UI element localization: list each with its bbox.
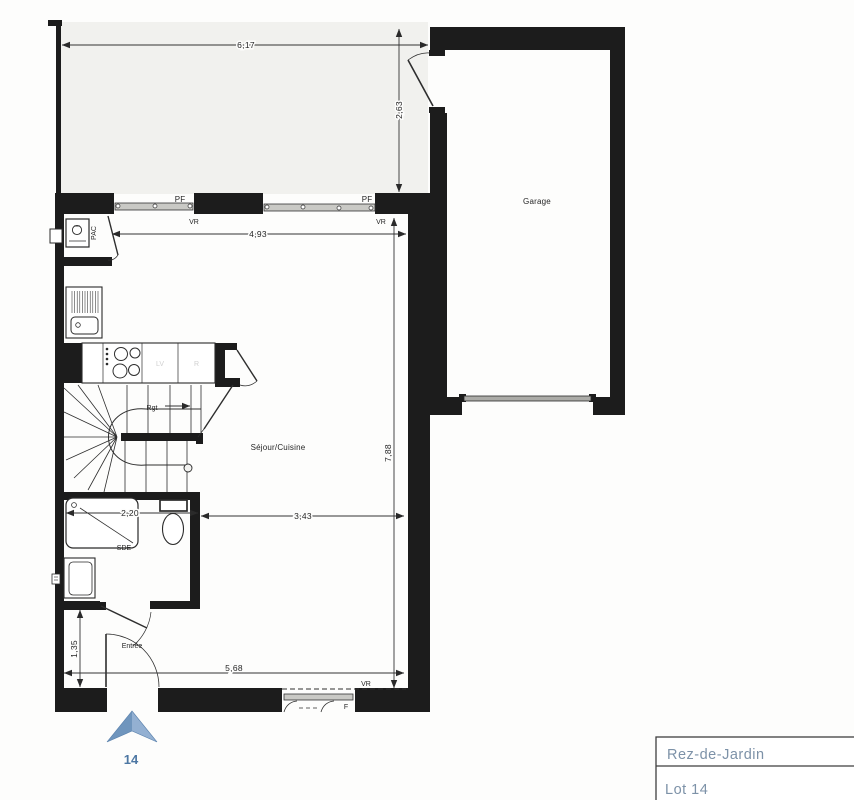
garage-wall-bottom-left <box>430 397 462 415</box>
dim-shower-width: 2,20 <box>121 508 139 518</box>
lot-marker-number: 14 <box>124 752 139 767</box>
window-hinge-dot <box>301 205 305 209</box>
sde-door-leaf <box>101 606 147 628</box>
kitchen: LV R PAC <box>66 219 215 383</box>
window-hinge-dot <box>116 204 120 208</box>
wall-sde-bottom-right <box>150 601 200 609</box>
label-pf-right: PF <box>362 195 373 204</box>
wall-sde-bottom-left <box>58 601 100 610</box>
dim-entry-depth: 1,35 <box>69 640 79 658</box>
floor-plan-drawing: PF PF VR VR VR F <box>0 0 854 800</box>
title-block-level: Rez-de-Jardin <box>667 747 765 763</box>
washbasin-bowl <box>69 562 92 595</box>
wall-bottom-c <box>355 688 430 712</box>
terrace-left-wall <box>56 22 61 194</box>
wall-bottom-a <box>55 688 107 712</box>
wall-top-c <box>375 193 430 214</box>
garage-wall-left <box>430 113 447 397</box>
room-labels: Garage Séjour/Cuisine Entrée <box>122 197 552 650</box>
label-vr-bottom: VR <box>361 681 371 688</box>
entry-door-swing <box>106 634 159 687</box>
sink-basin <box>71 317 98 334</box>
label-fridge: R <box>194 361 199 368</box>
hob-knob <box>106 348 109 351</box>
garage-door-jamb-bottom <box>429 107 445 113</box>
sde-door-swing <box>133 612 151 646</box>
hob-knob <box>106 353 109 356</box>
dim-terrace-depth: 2,63 <box>394 101 404 119</box>
label-vr-right: VR <box>376 219 386 226</box>
lot-marker: 14 <box>107 711 157 767</box>
wall-right <box>408 214 430 712</box>
dim-terrace-width: 6,17 <box>237 40 255 50</box>
stair-mid-wall <box>121 433 202 441</box>
window-hinge-dot <box>369 206 373 210</box>
label-f-bottom: F <box>344 704 348 711</box>
toilet-tank <box>160 500 187 511</box>
dim-living-depth: 7,88 <box>383 444 393 462</box>
garage-wall-right <box>610 27 625 413</box>
counter-door-leaf <box>237 350 257 381</box>
wall-pac-bottom <box>55 257 112 266</box>
window-hinge-dot <box>337 206 341 210</box>
pac-vent-niche <box>50 229 62 243</box>
garage-gate <box>464 396 591 401</box>
wall-top-b <box>194 193 263 214</box>
label-storage: Rgt <box>147 405 158 412</box>
hob-knob <box>106 363 109 366</box>
label-pf-left: PF <box>175 195 186 204</box>
title-block: Rez-de-Jardin Lot 14 <box>656 737 854 800</box>
dim-living-width: 3,43 <box>294 511 312 521</box>
wall-sde-right <box>190 500 200 607</box>
garage-wall-bottom-right <box>593 397 625 415</box>
wall-bottom-b <box>158 688 282 712</box>
label-garage: Garage <box>523 197 551 206</box>
label-dishwasher: LV <box>156 361 164 368</box>
stair-storage-door-leaf <box>204 385 233 429</box>
window-right-glazing <box>264 204 375 211</box>
towel-radiator-icon <box>52 574 60 584</box>
title-block-lot: Lot 14 <box>665 782 708 798</box>
garage-wall-top <box>430 27 625 50</box>
windows: PF PF VR VR VR F <box>115 195 406 712</box>
counter-door-swing <box>240 381 257 386</box>
label-sde: SDE <box>117 545 132 552</box>
label-living-kitchen: Séjour/Cuisine <box>251 443 306 452</box>
wall-top-a <box>55 193 114 214</box>
floor-plan-page: PF PF VR VR VR F <box>0 0 854 800</box>
wall-left <box>55 193 64 712</box>
dim-kitchen-width: 4,93 <box>249 229 267 239</box>
pac-door-leaf <box>108 216 118 255</box>
stair-newel-post <box>184 464 192 472</box>
window-hinge-dot <box>153 204 157 208</box>
window-hinge-dot <box>265 205 269 209</box>
label-entry: Entrée <box>122 643 143 650</box>
pac-unit-box <box>66 219 89 247</box>
counter-stub-top <box>215 343 237 350</box>
hob-knob <box>106 358 109 361</box>
label-pac: PAC <box>91 226 98 240</box>
dim-ground-width: 5,68 <box>225 663 243 673</box>
garage-walls <box>429 27 625 415</box>
label-vr-left: VR <box>189 219 199 226</box>
toilet-bowl <box>163 514 184 545</box>
stair-winder-treads <box>64 385 117 492</box>
garage-door-jamb-top <box>429 50 445 56</box>
window-hinge-dot <box>188 204 192 208</box>
window-bottom-glazing <box>284 694 353 700</box>
counter-wall-stub-left <box>64 343 82 383</box>
